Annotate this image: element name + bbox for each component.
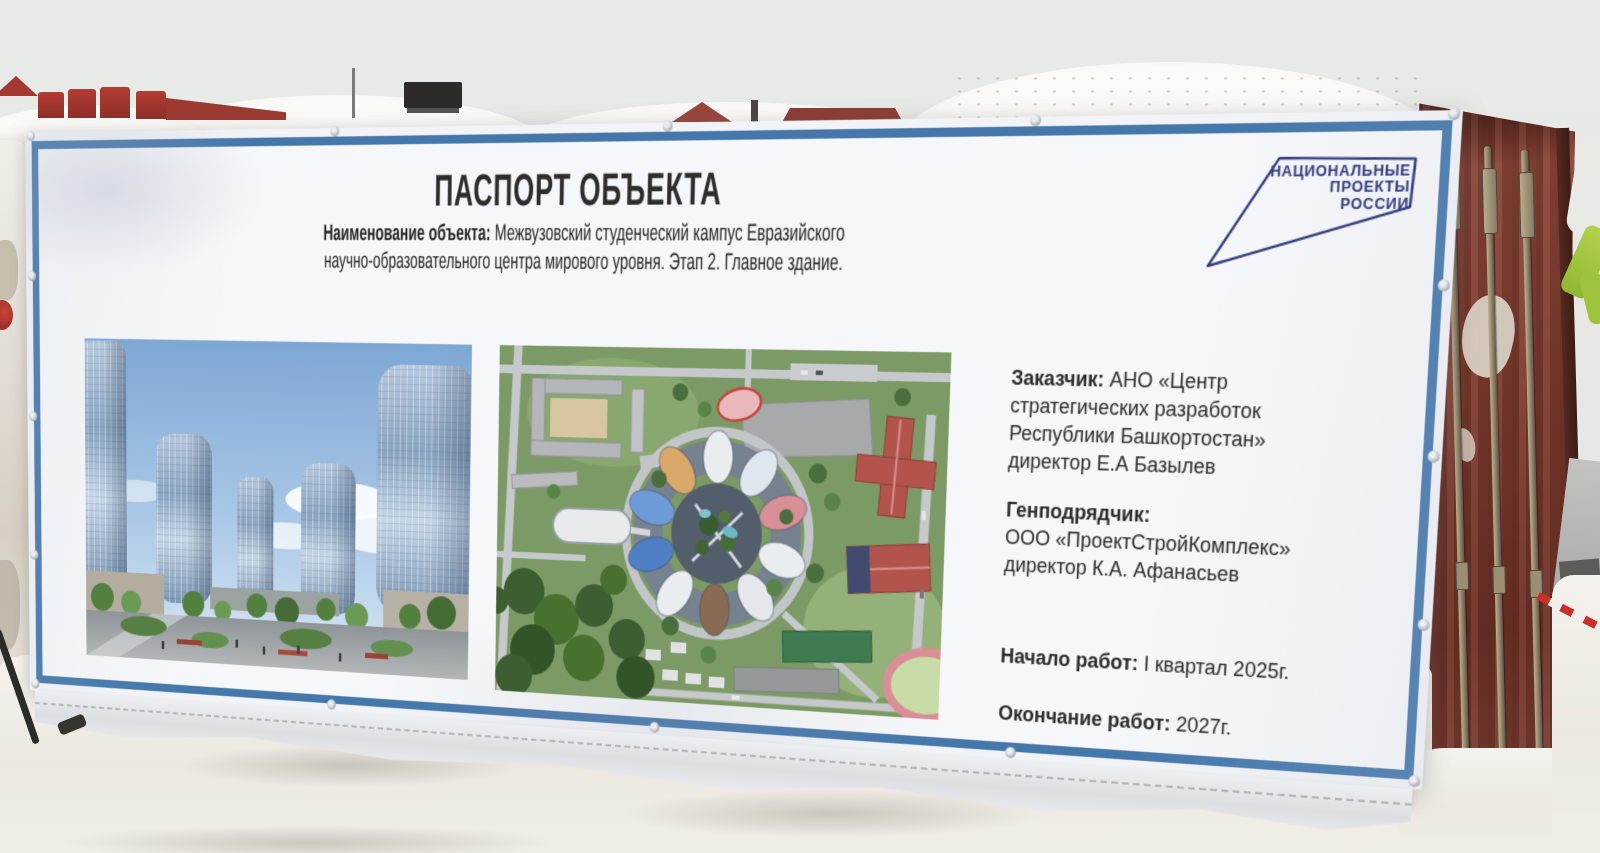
red-industrial-building — [100, 87, 130, 118]
grommet — [1005, 747, 1016, 759]
red-industrial-building — [38, 92, 64, 118]
grommet — [29, 411, 37, 421]
contractor-block: Генподрядчик:ООО «ПроектСтройКомплекс» д… — [1004, 496, 1325, 593]
logo-text-line2: ПРОЕКТЫ — [1329, 180, 1410, 196]
grommet — [330, 126, 339, 137]
customer-label: Заказчик: — [1011, 366, 1105, 391]
towers-rendering-image — [85, 338, 472, 680]
start-date-label: Начало работ: — [1000, 644, 1139, 675]
grommet — [28, 271, 36, 281]
banner-title: ПАСПОРТ ОБЪЕКТА — [430, 163, 726, 217]
red-industrial-building — [68, 89, 96, 118]
grommet — [1408, 775, 1420, 788]
banner-object-name: Наименование объекта: Межвузовский студе… — [312, 219, 858, 278]
object-passport-banner: ПАСПОРТ ОБЪЕКТА Наименование объекта: Ме… — [25, 110, 1463, 790]
antenna-pole — [352, 68, 355, 118]
grommet — [27, 131, 35, 141]
snow-track-shadow — [60, 825, 560, 853]
grommet — [1417, 619, 1430, 632]
grommet — [663, 120, 673, 131]
grommet — [1448, 108, 1461, 121]
grommet — [1030, 114, 1041, 126]
aerial-site-plan-image — [495, 345, 952, 720]
construction-site-photo: ПАСПОРТ ОБЪЕКТА Наименование объекта: Ме… — [0, 0, 1600, 853]
red-industrial-building — [136, 91, 166, 119]
grommet — [650, 722, 660, 733]
grommet — [30, 550, 38, 560]
grommet — [1427, 450, 1440, 462]
object-name-label: Наименование объекта: — [323, 221, 491, 246]
customer-block: Заказчик: АНО «Центр стратегических разр… — [1008, 364, 1332, 485]
national-projects-logo: НАЦИОНАЛЬНЫЕ ПРОЕКТЫ РОССИИ — [1207, 156, 1418, 269]
circular-campus-building — [623, 428, 813, 641]
rooftop-vent-unit — [404, 82, 462, 108]
distant-red-roof — [672, 102, 732, 122]
logo-text-line1: НАЦИОНАЛЬНЫЕ — [1270, 163, 1411, 180]
dirt-patch — [0, 240, 18, 300]
grommet — [31, 678, 39, 688]
red-roof-building — [0, 76, 38, 96]
grommet — [1438, 279, 1451, 291]
object-name-line2: научно-образовательного центра мирового … — [312, 247, 857, 278]
object-name-line1: Наименование объекта: Межвузовский студе… — [312, 219, 858, 249]
logo-text-line3: РОССИИ — [1340, 197, 1409, 213]
contractor-label: Генподрядчик: — [1006, 498, 1151, 526]
grommet — [327, 699, 336, 710]
